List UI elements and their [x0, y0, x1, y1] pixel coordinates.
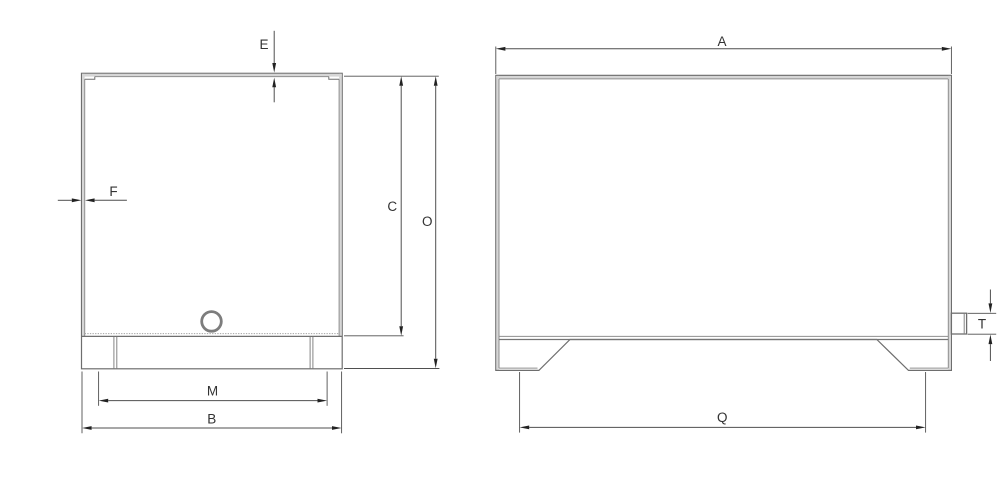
svg-text:E: E — [259, 37, 268, 52]
svg-text:C: C — [387, 199, 397, 214]
svg-text:T: T — [978, 316, 986, 331]
svg-text:A: A — [717, 34, 726, 49]
svg-text:B: B — [207, 411, 216, 426]
svg-text:M: M — [207, 384, 218, 399]
svg-text:O: O — [422, 214, 433, 229]
svg-text:F: F — [109, 184, 117, 199]
svg-text:Q: Q — [717, 410, 728, 425]
